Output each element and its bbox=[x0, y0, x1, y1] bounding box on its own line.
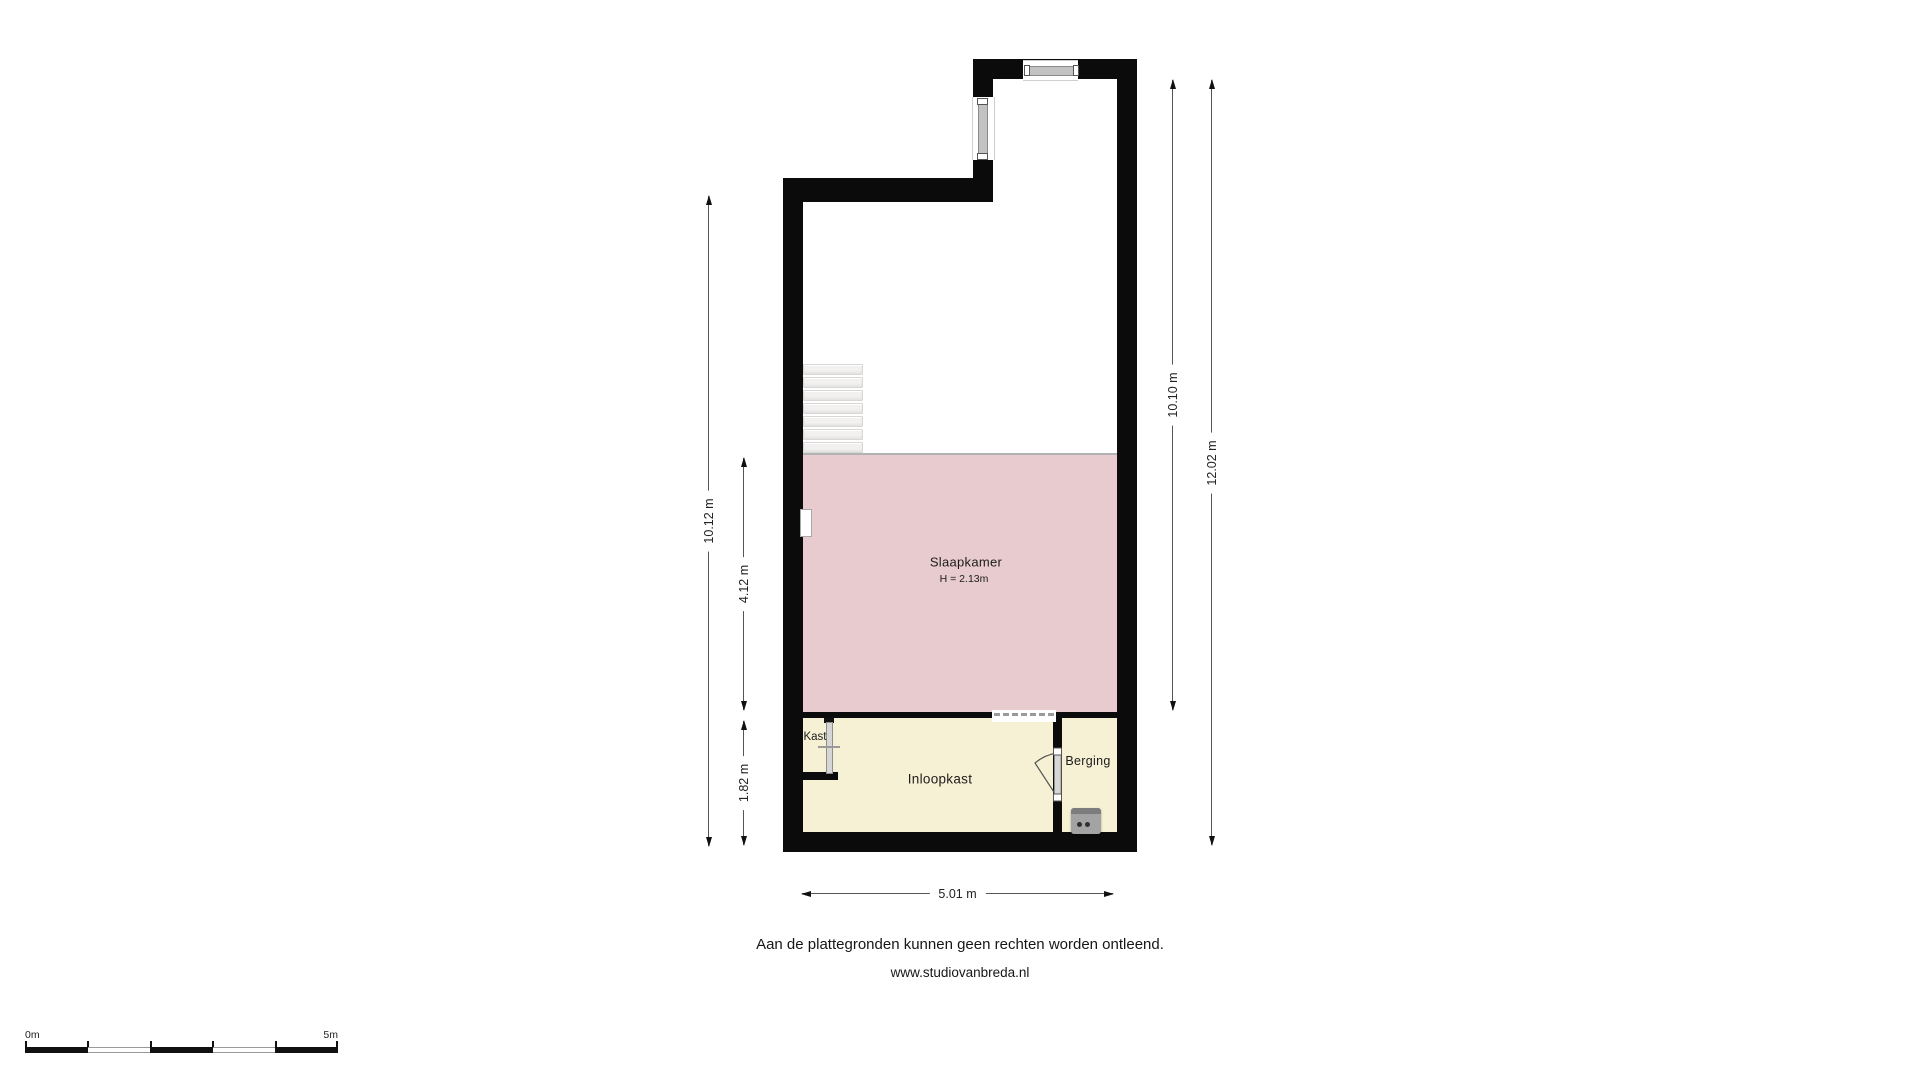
wall-right bbox=[1117, 59, 1137, 852]
arrow-up-icon bbox=[741, 457, 747, 467]
door-hinge-icon bbox=[1054, 794, 1062, 801]
stair-tread bbox=[803, 390, 863, 401]
dimension-left-total: 10.12 m bbox=[708, 196, 709, 846]
scale-segment bbox=[150, 1047, 213, 1053]
dimension-label: 1.82 m bbox=[737, 756, 751, 810]
website-text: www.studiovanbreda.nl bbox=[0, 965, 1920, 980]
berging-door bbox=[1010, 735, 1066, 811]
stair-tread bbox=[803, 403, 863, 414]
kast-label: Kast bbox=[803, 731, 826, 743]
floorplan-page: Slaapkamer H = 2.13m Kast Inloopkast Ber… bbox=[0, 0, 1920, 1080]
door-leaf-icon bbox=[1055, 755, 1062, 794]
wall-niche bbox=[800, 509, 812, 537]
scale-end-label: 5m bbox=[323, 1029, 338, 1041]
scale-segment bbox=[213, 1047, 276, 1053]
stair-tread bbox=[803, 416, 863, 427]
scale-segment bbox=[25, 1047, 88, 1053]
dimension-slaapkamer-height: 4.12 m bbox=[743, 458, 744, 710]
scale-bar-segments bbox=[25, 1047, 338, 1053]
scale-bar: 0m 5m bbox=[25, 1029, 338, 1055]
staircase bbox=[803, 364, 863, 453]
dimension-label: 10.10 m bbox=[1166, 364, 1180, 425]
wall-slaapkamer-bottom bbox=[803, 712, 1117, 718]
wall-main-top bbox=[783, 178, 993, 202]
stair-tread bbox=[803, 364, 863, 375]
dimension-label: 10.12 m bbox=[702, 490, 716, 551]
window-icon bbox=[1025, 66, 1078, 76]
dimension-label: 4.12 m bbox=[737, 557, 751, 611]
window-cap bbox=[977, 153, 988, 160]
scale-start-label: 0m bbox=[25, 1029, 40, 1041]
dimension-right-total: 12.02 m bbox=[1211, 80, 1212, 845]
arrow-down-icon bbox=[741, 701, 747, 711]
arrow-down-icon bbox=[1209, 836, 1215, 846]
window-cap bbox=[977, 98, 988, 105]
arrow-up-icon bbox=[706, 195, 712, 205]
slaapkamer-height-label: H = 2.13m bbox=[940, 573, 989, 585]
arrow-up-icon bbox=[1209, 79, 1215, 89]
kast-door-icon bbox=[826, 722, 833, 774]
stair-tread bbox=[803, 429, 863, 440]
boiler-dot-icon bbox=[1085, 822, 1090, 827]
stair-tread bbox=[803, 377, 863, 388]
wall-bottom bbox=[783, 832, 1137, 852]
dimension-label: 12.02 m bbox=[1205, 432, 1219, 493]
dimension-bottom-section-height: 1.82 m bbox=[743, 721, 744, 845]
dimension-right-upper: 10.10 m bbox=[1172, 80, 1173, 710]
arrow-down-icon bbox=[741, 836, 747, 846]
door-hinge-icon bbox=[1054, 748, 1062, 755]
arrow-right-icon bbox=[1104, 891, 1114, 897]
window-icon bbox=[978, 100, 988, 158]
arrow-down-icon bbox=[1170, 701, 1176, 711]
stair-tread bbox=[803, 442, 863, 453]
arrow-up-icon bbox=[1170, 79, 1176, 89]
arrow-left-icon bbox=[801, 891, 811, 897]
berging-label: Berging bbox=[1065, 754, 1110, 768]
scale-segment bbox=[275, 1047, 338, 1053]
boiler-dot-icon bbox=[1077, 822, 1082, 827]
kast-door-handle-icon bbox=[818, 746, 840, 748]
window-cap bbox=[1073, 65, 1079, 76]
opening-passage bbox=[992, 710, 1056, 722]
arrow-up-icon bbox=[741, 720, 747, 730]
opening-dashes-icon bbox=[994, 713, 1054, 716]
door-swing-arc-icon bbox=[1035, 753, 1057, 796]
dimension-width: 5.01 m bbox=[802, 893, 1113, 894]
slaapkamer-label: Slaapkamer bbox=[930, 555, 1002, 570]
boiler-icon bbox=[1071, 808, 1101, 834]
disclaimer-text: Aan de plattegronden kunnen geen rechten… bbox=[0, 936, 1920, 953]
boiler-top-band bbox=[1071, 808, 1101, 814]
scale-segment bbox=[88, 1047, 151, 1053]
arrow-down-icon bbox=[706, 837, 712, 847]
inloopkast-label: Inloopkast bbox=[908, 772, 973, 787]
window-cap bbox=[1024, 65, 1030, 76]
dimension-label: 5.01 m bbox=[929, 887, 985, 901]
